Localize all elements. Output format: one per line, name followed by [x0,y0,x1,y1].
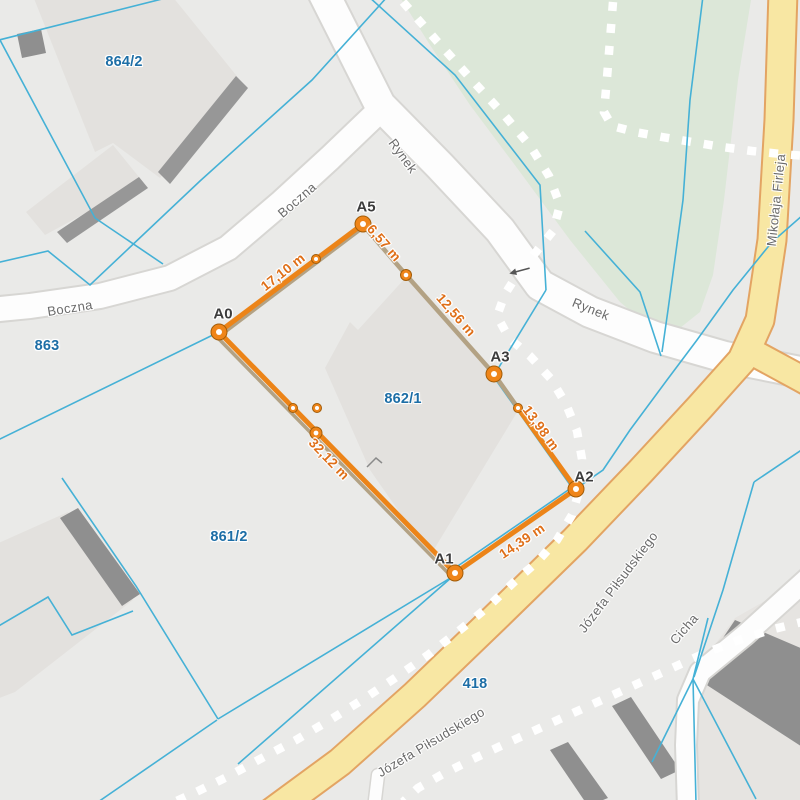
parcel-label-864-2: 864/2 [105,54,142,70]
vertex-handle-a3[interactable] [486,366,502,382]
vertex-label-a3: A3 [490,349,509,366]
map-canvas[interactable]: 864/2 863 862/1 861/2 418 Boczna Boczna … [0,0,800,800]
midpoint-handle[interactable] [312,255,321,264]
parcel-label-863: 863 [35,338,60,354]
vertex-label-a2: A2 [574,469,593,486]
road-stub [374,775,378,800]
parcel-label-861-2: 861/2 [210,529,247,545]
parcel-label-862-1: 862/1 [384,391,421,407]
building-small-dark [17,29,46,58]
vertex-label-a1: A1 [434,551,453,568]
midpoint-handle[interactable] [313,404,322,413]
vertex-handle-a0[interactable] [211,324,227,340]
vertex-handle-a4[interactable] [401,270,412,281]
midpoint-handle[interactable] [289,404,298,413]
vertex-label-a5: A5 [356,199,375,216]
vertex-label-a0: A0 [213,306,232,323]
parcel-label-418: 418 [463,676,488,692]
